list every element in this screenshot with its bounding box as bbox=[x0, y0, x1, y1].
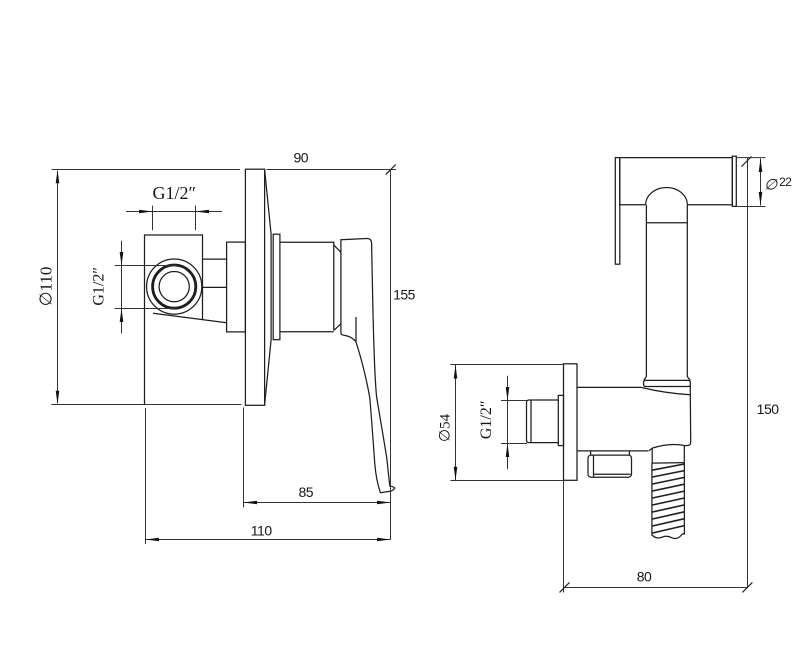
svg-text:90: 90 bbox=[294, 150, 309, 166]
svg-text:110: 110 bbox=[251, 523, 273, 539]
svg-text:80: 80 bbox=[637, 568, 652, 584]
svg-text:85: 85 bbox=[299, 484, 314, 500]
svg-text:150: 150 bbox=[757, 401, 780, 417]
svg-text:22: 22 bbox=[779, 175, 792, 189]
svg-text:∅54: ∅54 bbox=[438, 413, 454, 442]
svg-text:G1/2″: G1/2″ bbox=[91, 267, 108, 306]
svg-text:∅110: ∅110 bbox=[37, 267, 56, 307]
svg-text:155: 155 bbox=[393, 286, 416, 302]
svg-text:G1/2″: G1/2″ bbox=[478, 400, 495, 439]
svg-text:∅: ∅ bbox=[764, 177, 778, 193]
svg-text:G1/2″: G1/2″ bbox=[153, 183, 197, 203]
